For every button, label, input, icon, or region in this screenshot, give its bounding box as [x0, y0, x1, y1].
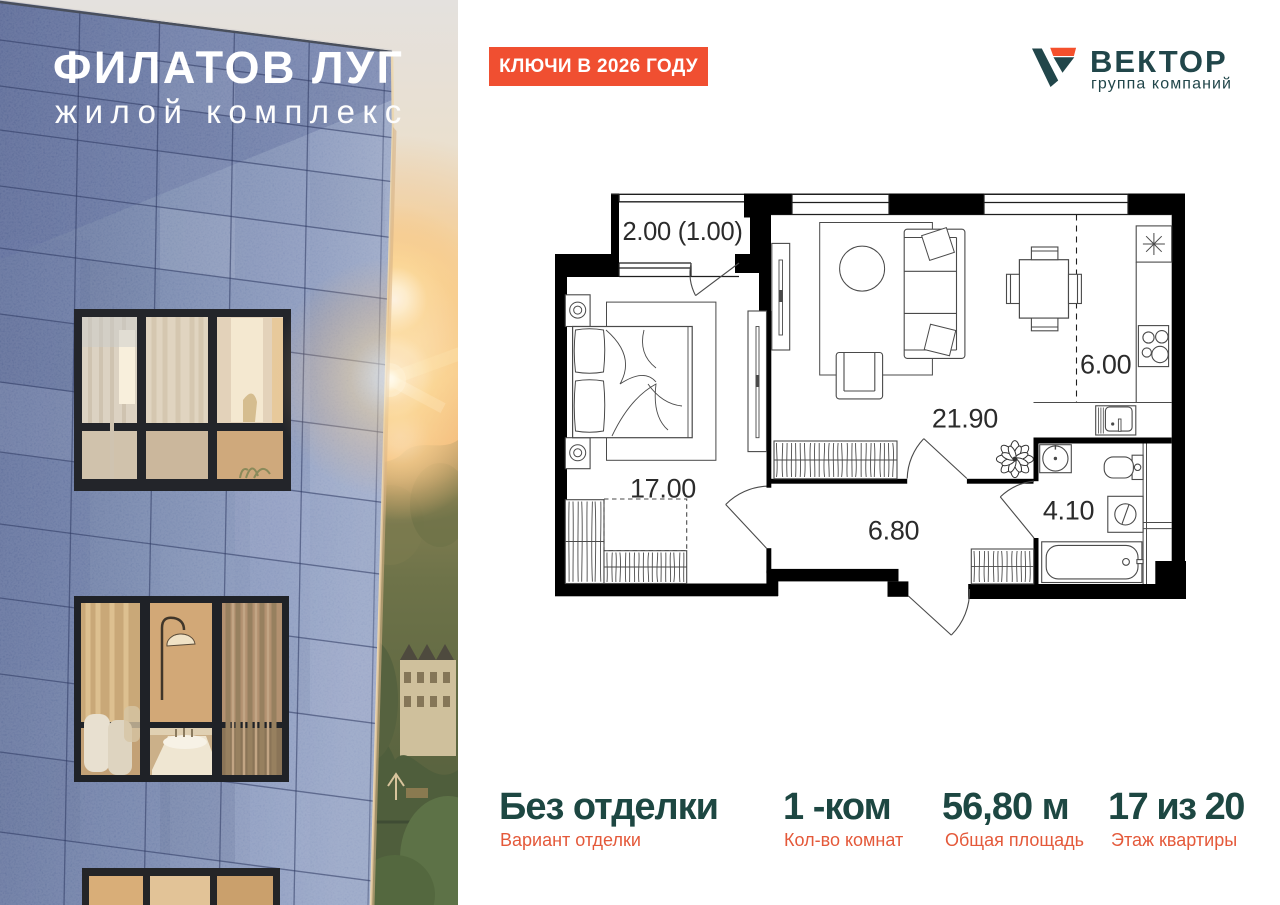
svg-text:группа компаний: группа компаний — [1091, 76, 1232, 93]
svg-text:ВЕКТОР: ВЕКТОР — [1090, 44, 1228, 79]
svg-text:4.10: 4.10 — [1043, 496, 1094, 526]
svg-text:2.00 (1.00): 2.00 (1.00) — [622, 218, 742, 246]
svg-text:21.90: 21.90 — [932, 404, 998, 434]
svg-text:6.80: 6.80 — [868, 516, 919, 546]
svg-text:17.00: 17.00 — [630, 474, 696, 504]
svg-text:6.00: 6.00 — [1080, 350, 1131, 380]
